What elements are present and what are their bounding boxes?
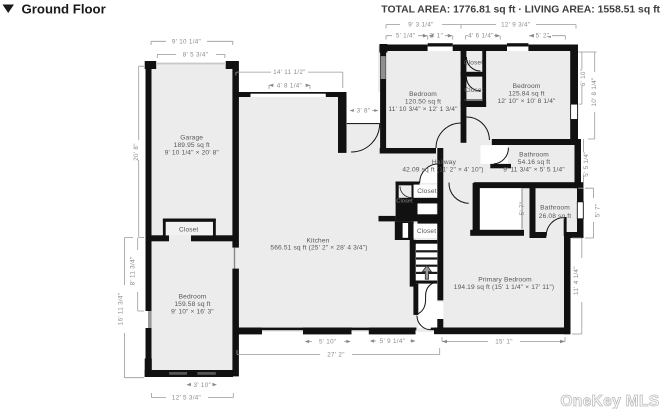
- svg-text:12' 9 3/4": 12' 9 3/4": [501, 22, 530, 29]
- svg-text:27' 2": 27' 2": [327, 352, 345, 359]
- svg-text:Bedroom: Bedroom: [409, 91, 437, 98]
- svg-text:Bathroom: Bathroom: [540, 205, 570, 212]
- svg-text:TOTAL AREA: 1776.81 sq ft · LI: TOTAL AREA: 1776.81 sq ft · LIVING AREA:…: [381, 5, 660, 16]
- svg-text:5' 2": 5' 2": [536, 33, 550, 40]
- svg-text:125.84 sq ft: 125.84 sq ft: [508, 91, 544, 98]
- svg-text:Closet: Closet: [417, 188, 436, 195]
- svg-text:Garage: Garage: [180, 134, 203, 141]
- svg-text:159.58 sq ft: 159.58 sq ft: [174, 301, 210, 308]
- svg-text:189.95 sq ft: 189.95 sq ft: [174, 142, 210, 149]
- svg-text:Closet: Closet: [396, 198, 413, 204]
- svg-text:Bathroom: Bathroom: [519, 152, 549, 159]
- svg-text:5' 9 1/4": 5' 9 1/4": [380, 338, 405, 345]
- svg-text:5' 1/4": 5' 1/4": [396, 33, 416, 40]
- svg-text:15' 1": 15' 1": [495, 339, 513, 346]
- svg-text:Bedroom: Bedroom: [513, 83, 541, 90]
- svg-text:Closet: Closet: [179, 226, 198, 233]
- svg-text:4' 6 1/4": 4' 6 1/4": [468, 33, 493, 40]
- svg-text:3' 10": 3' 10": [194, 382, 212, 389]
- svg-text:10' 8 1/4": 10' 8 1/4": [591, 77, 598, 106]
- svg-text:120.50 sq ft: 120.50 sq ft: [405, 99, 441, 106]
- svg-text:Ground Floor: Ground Floor: [22, 2, 106, 17]
- svg-text:42.09 sq ft (11' 2" × 4' 10"): 42.09 sq ft (11' 2" × 4' 10"): [402, 167, 483, 174]
- svg-text:12' 5 3/4": 12' 5 3/4": [172, 395, 201, 402]
- svg-text:Bedroom: Bedroom: [179, 294, 207, 301]
- svg-text:16' 11 3/4": 16' 11 3/4": [118, 293, 125, 326]
- svg-text:11' 10 3/4" × 12' 1 3/4": 11' 10 3/4" × 12' 1 3/4": [388, 106, 458, 113]
- svg-text:Primary Bedroom: Primary Bedroom: [478, 276, 532, 283]
- svg-text:Closet: Closet: [417, 228, 436, 235]
- svg-text:3' 1": 3' 1": [429, 33, 443, 40]
- svg-text:14' 11 1/2": 14' 11 1/2": [273, 69, 306, 76]
- svg-text:8' 5 3/4": 8' 5 3/4": [183, 51, 208, 58]
- svg-text:Closet: Closet: [464, 87, 483, 94]
- svg-text:3' 8": 3' 8": [357, 108, 371, 115]
- svg-text:5' 7": 5' 7": [595, 204, 602, 218]
- svg-text:11' 4 1/4": 11' 4 1/4": [573, 266, 580, 295]
- svg-text:5' 5 1/4": 5' 5 1/4": [583, 151, 590, 176]
- svg-text:20' 8": 20' 8": [133, 143, 140, 161]
- svg-text:9' 3 1/4": 9' 3 1/4": [408, 22, 433, 29]
- svg-text:566.51 sq ft (25' 2" × 28' 4 3: 566.51 sq ft (25' 2" × 28' 4 3/4"): [270, 245, 367, 252]
- svg-text:12' 10" × 10' 8 1/4": 12' 10" × 10' 8 1/4": [497, 98, 556, 105]
- svg-text:OneKey MLS: OneKey MLS: [560, 393, 659, 409]
- svg-text:54.16 sq ft: 54.16 sq ft: [518, 159, 550, 166]
- svg-text:26.08 sq ft: 26.08 sq ft: [539, 213, 571, 220]
- svg-text:Closet: Closet: [464, 60, 483, 67]
- svg-text:Hallway: Hallway: [432, 159, 457, 166]
- svg-text:194.19 sq ft (15' 1 1/4" × 17': 194.19 sq ft (15' 1 1/4" × 17' 11"): [454, 284, 555, 291]
- svg-text:6' 10": 6' 10": [580, 69, 587, 87]
- svg-text:8' 11 3/4": 8' 11 3/4": [130, 257, 137, 286]
- svg-text:9' 10 1/4": 9' 10 1/4": [172, 38, 201, 45]
- svg-text:9' 11 3/4" × 5' 5 1/4": 9' 11 3/4" × 5' 5 1/4": [503, 167, 565, 174]
- svg-text:Kitchen: Kitchen: [306, 237, 329, 244]
- svg-text:4' 8 1/4": 4' 8 1/4": [277, 82, 302, 89]
- svg-text:9' 10" × 16' 3": 9' 10" × 16' 3": [171, 309, 214, 316]
- svg-text:9' 10 1/4" × 20' 8": 9' 10 1/4" × 20' 8": [165, 149, 220, 156]
- svg-text:5' 10": 5' 10": [319, 339, 337, 346]
- svg-text:5' 7": 5' 7": [519, 202, 526, 216]
